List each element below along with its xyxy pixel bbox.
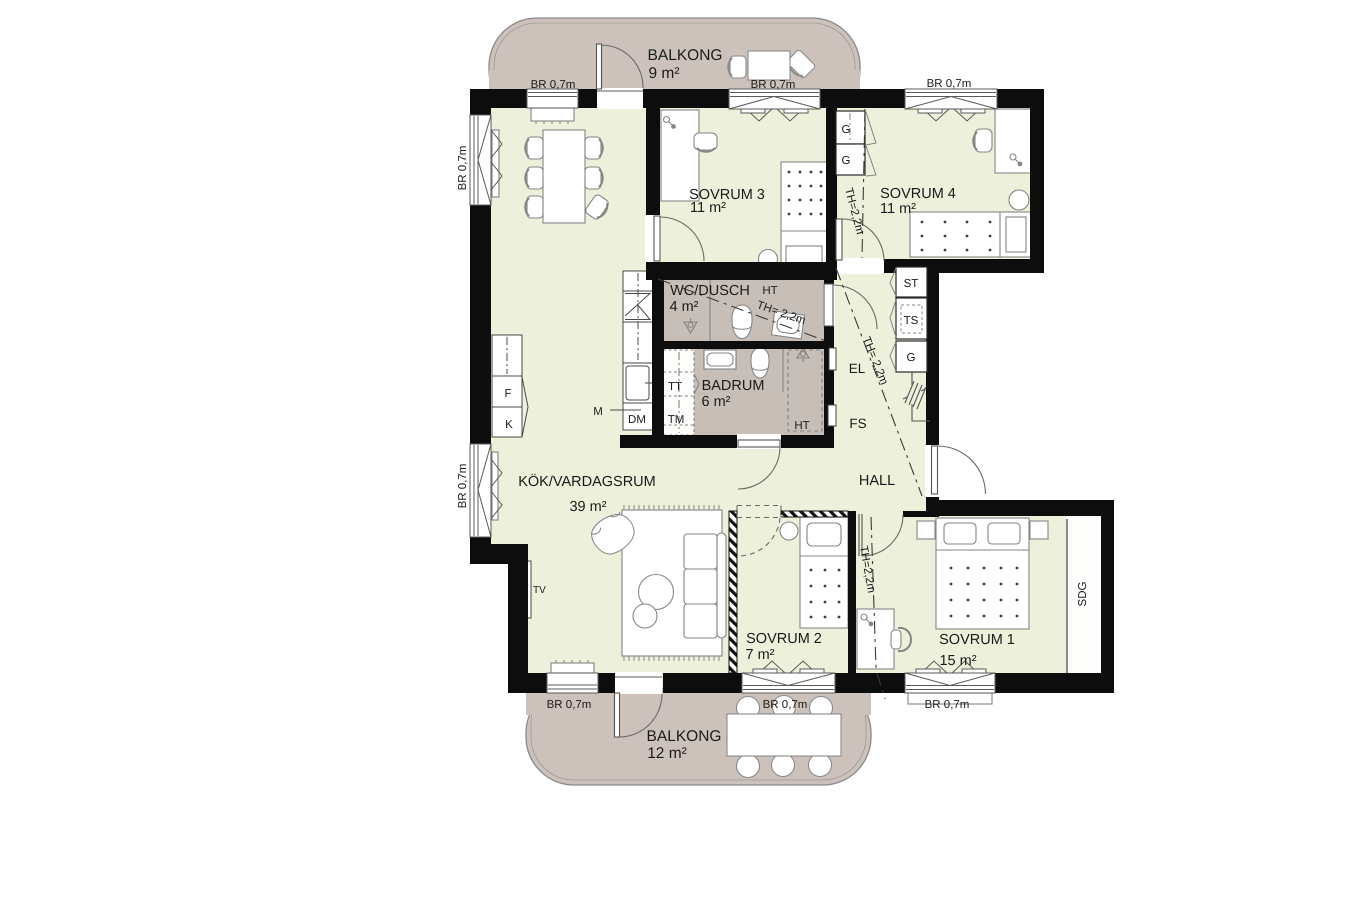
svg-text:TV: TV bbox=[533, 585, 546, 596]
svg-text:BR 0,7m: BR 0,7m bbox=[457, 146, 469, 191]
svg-text:39 m²: 39 m² bbox=[569, 499, 606, 515]
svg-text:KÖK/VARDAGSRUM: KÖK/VARDAGSRUM bbox=[518, 473, 656, 490]
svg-text:EL: EL bbox=[849, 361, 866, 376]
svg-text:M: M bbox=[593, 406, 603, 418]
svg-text:HALL: HALL bbox=[859, 473, 895, 489]
svg-text:ST: ST bbox=[904, 278, 919, 290]
svg-text:SOVRUM 1: SOVRUM 1 bbox=[939, 632, 1015, 648]
svg-text:BALKONG: BALKONG bbox=[648, 47, 723, 64]
svg-text:G: G bbox=[907, 352, 916, 364]
svg-text:FS: FS bbox=[849, 416, 866, 431]
svg-text:K: K bbox=[505, 419, 513, 431]
svg-text:BR 0,7m: BR 0,7m bbox=[925, 699, 970, 711]
svg-text:HT: HT bbox=[794, 420, 809, 432]
svg-text:WC/DUSCH: WC/DUSCH bbox=[670, 283, 750, 299]
svg-text:BR 0,7m: BR 0,7m bbox=[763, 699, 808, 711]
svg-text:12 m²: 12 m² bbox=[647, 745, 687, 762]
svg-text:BR 0,7m: BR 0,7m bbox=[751, 79, 796, 91]
svg-text:9 m²: 9 m² bbox=[649, 65, 680, 82]
svg-text:BADRUM: BADRUM bbox=[702, 378, 765, 394]
svg-text:TT: TT bbox=[668, 381, 682, 393]
svg-text:SOVRUM 4: SOVRUM 4 bbox=[880, 186, 956, 202]
svg-text:BALKONG: BALKONG bbox=[647, 728, 722, 745]
svg-text:SDG: SDG bbox=[1077, 581, 1089, 606]
svg-text:6 m²: 6 m² bbox=[702, 394, 731, 410]
svg-text:HT: HT bbox=[762, 285, 777, 297]
svg-text:15 m²: 15 m² bbox=[939, 653, 976, 669]
svg-text:G: G bbox=[842, 124, 851, 136]
svg-text:DM: DM bbox=[628, 414, 646, 426]
svg-text:BR 0,7m: BR 0,7m bbox=[547, 699, 592, 711]
svg-text:BR 0,7m: BR 0,7m bbox=[927, 78, 972, 90]
svg-text:F: F bbox=[504, 388, 511, 400]
svg-text:11 m²: 11 m² bbox=[880, 201, 916, 217]
svg-text:TS: TS bbox=[904, 315, 919, 327]
svg-text:4 m²: 4 m² bbox=[670, 299, 699, 315]
svg-text:G: G bbox=[842, 155, 851, 167]
svg-text:7 m²: 7 m² bbox=[746, 647, 775, 663]
svg-text:SOVRUM 2: SOVRUM 2 bbox=[746, 631, 822, 647]
svg-text:11 m²: 11 m² bbox=[690, 200, 726, 216]
svg-text:TM: TM bbox=[668, 414, 685, 426]
svg-text:BR 0,7m: BR 0,7m bbox=[457, 464, 469, 509]
svg-text:BR 0,7m: BR 0,7m bbox=[531, 79, 576, 91]
